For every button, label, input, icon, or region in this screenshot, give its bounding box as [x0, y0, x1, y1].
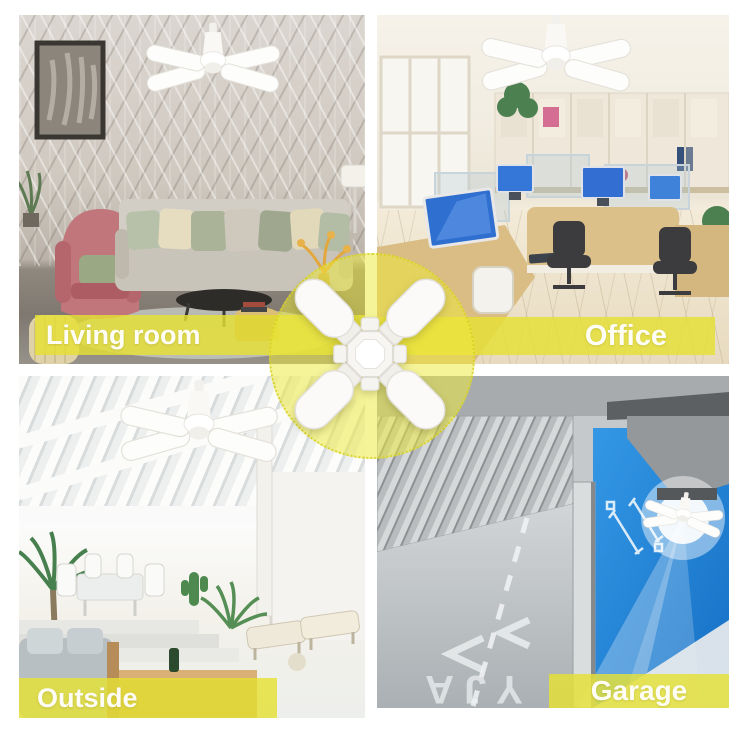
- sofa-cushions: [126, 208, 351, 252]
- lounge-chairs: [246, 610, 360, 671]
- white-chair: [473, 267, 513, 313]
- label-band-outside: Outside: [19, 678, 277, 718]
- product-highlight-circle: [269, 253, 475, 459]
- garage-label: Garage: [591, 677, 688, 705]
- outside-ceiling-light: [119, 380, 279, 464]
- label-band-garage: Garage: [549, 674, 729, 708]
- living-room-ceiling-light: [145, 23, 281, 94]
- foldable-four-blade-led-light-icon: [271, 255, 473, 457]
- outside-label: Outside: [37, 685, 138, 712]
- office-label: Office: [585, 322, 667, 351]
- living-room-label: Living room: [46, 322, 201, 349]
- office-ceiling-light: [480, 15, 632, 93]
- wall-art-frame: [37, 43, 103, 137]
- side-table: [288, 653, 306, 671]
- garage-floor-marking: YJA: [415, 667, 523, 708]
- pink-box: [543, 107, 559, 127]
- bottle: [169, 648, 179, 672]
- center-hub-inner: [356, 340, 385, 369]
- product-collage: Living room: [0, 0, 743, 734]
- plant-left: [19, 171, 40, 227]
